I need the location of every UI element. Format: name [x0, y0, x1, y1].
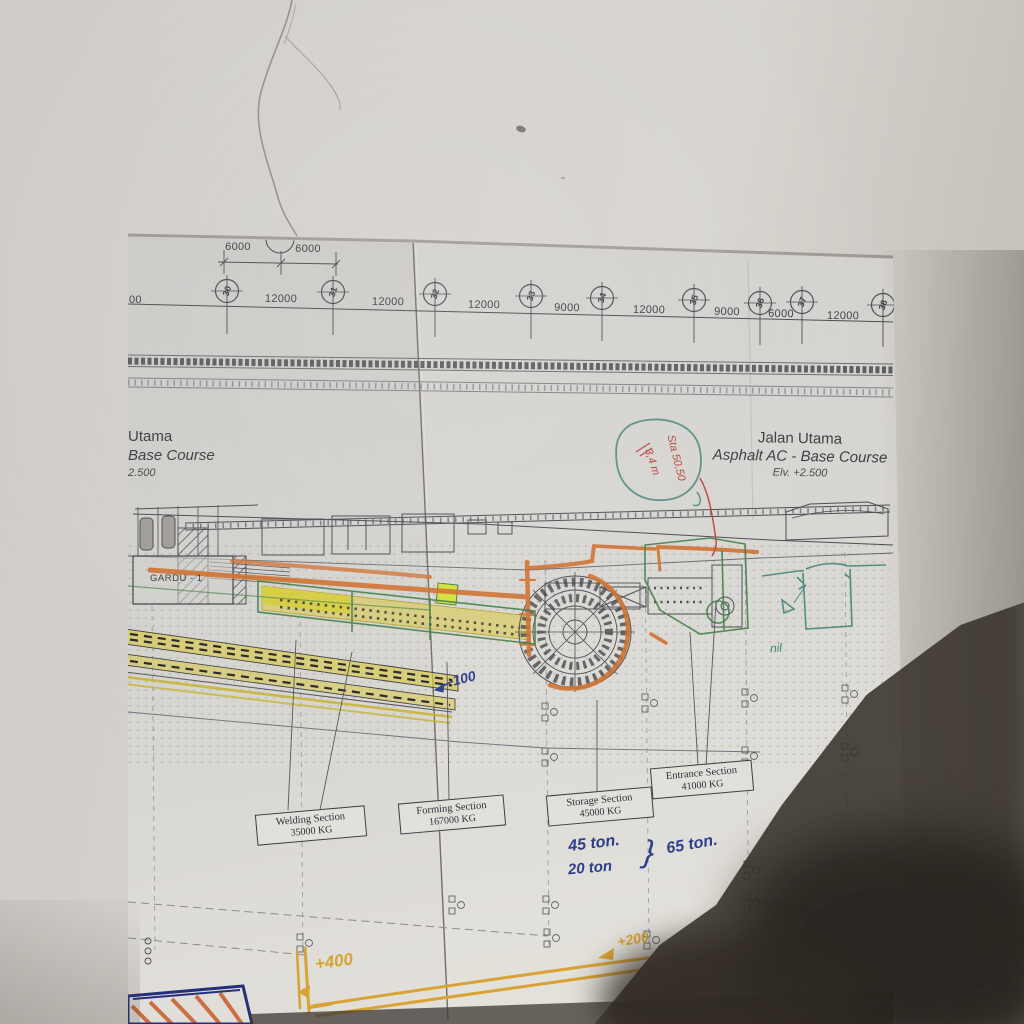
- photo-of-site-plan-on-wall: 6000 6000 00 12000 12000 12000 9000 1200…: [0, 0, 1024, 1024]
- lighting-overlay: [0, 0, 1024, 1024]
